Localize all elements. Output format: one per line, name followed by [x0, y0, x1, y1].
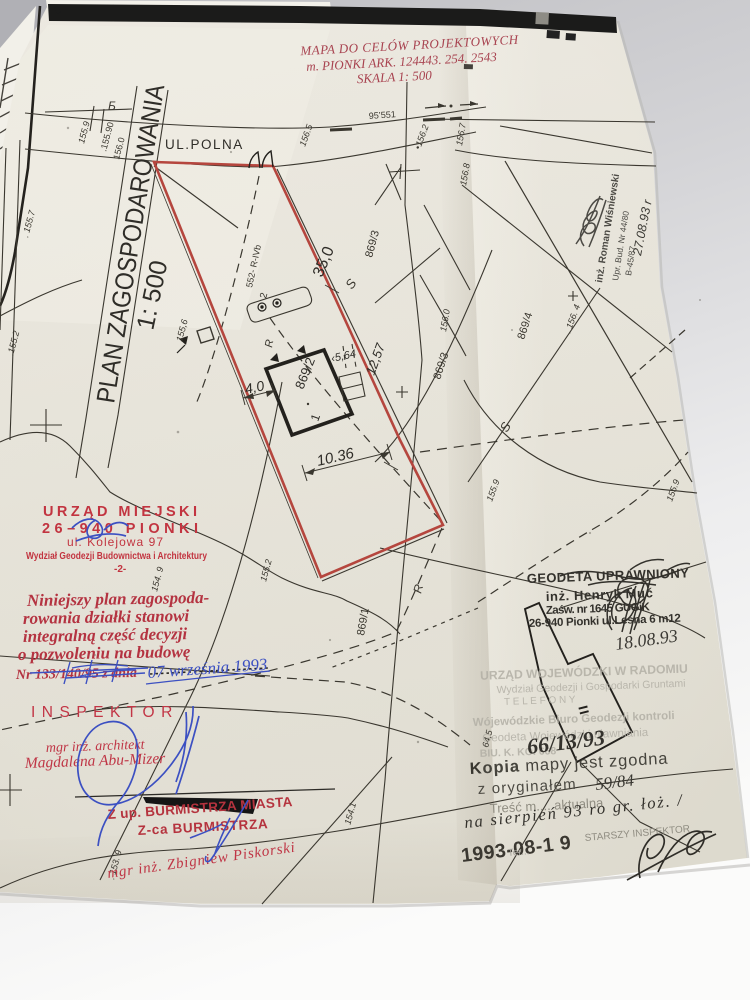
svg-text:Б: Б	[108, 99, 116, 113]
svg-text:ul. Kolejowa 97: ul. Kolejowa 97	[67, 535, 163, 549]
svg-text:Ter...: Ter...	[507, 846, 530, 859]
svg-text:Wydział Geodezji Budownictwa i: Wydział Geodezji Budownictwa i Architekt…	[26, 550, 207, 562]
svg-text:UL.POLNA: UL.POLNA	[165, 137, 244, 152]
svg-text:-2-: -2-	[114, 564, 126, 575]
svg-text:INSPEKTOR: INSPEKTOR	[31, 704, 179, 721]
svg-text:o pozwoleniu na budowę: o pozwoleniu na budowę	[18, 642, 191, 664]
svg-text:URZĄD MIEJSKI: URZĄD MIEJSKI	[43, 504, 197, 520]
svg-text:95’551: 95’551	[368, 109, 396, 121]
